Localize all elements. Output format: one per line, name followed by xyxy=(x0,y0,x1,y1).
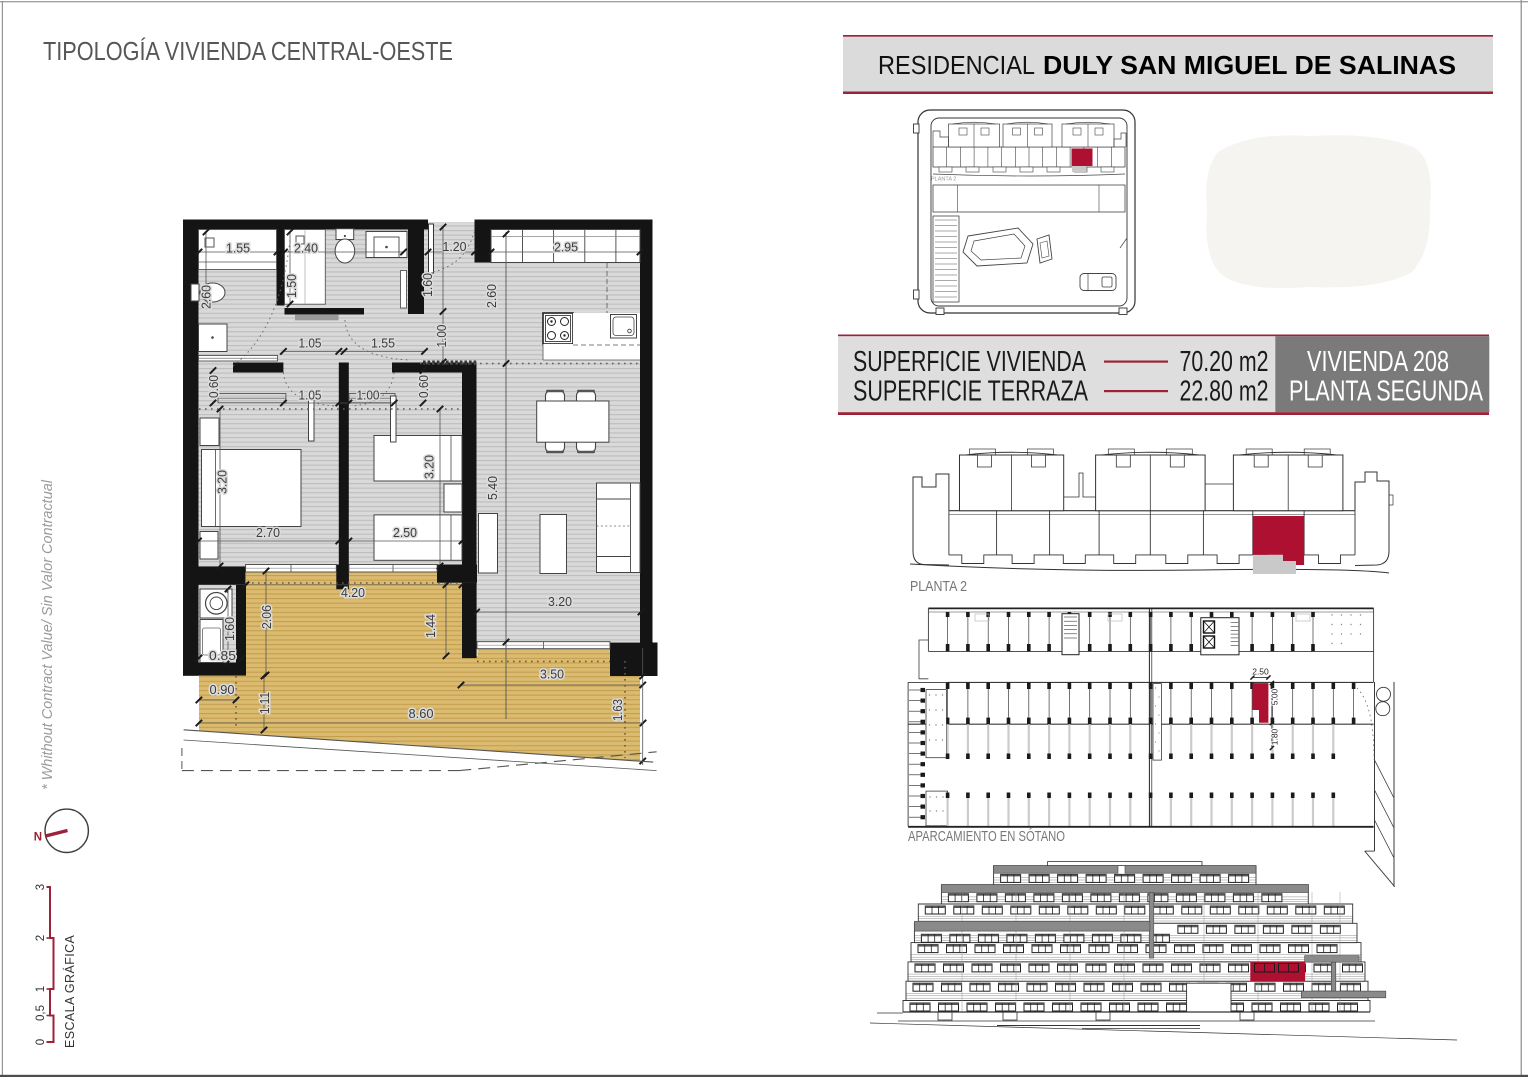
svg-text:0.90: 0.90 xyxy=(210,683,235,697)
svg-text:TIPOLOGÍA VIVIENDA CENTRAL-OES: TIPOLOGÍA VIVIENDA CENTRAL-OESTE xyxy=(43,36,453,66)
svg-text:1: 1 xyxy=(35,986,47,992)
svg-text:1.44: 1.44 xyxy=(424,614,438,638)
svg-text:0.60: 0.60 xyxy=(417,375,431,398)
svg-text:2.60: 2.60 xyxy=(200,285,214,309)
svg-text:1.11: 1.11 xyxy=(258,692,272,714)
svg-text:0,5: 0,5 xyxy=(35,1005,47,1021)
svg-text:1.63: 1.63 xyxy=(611,699,625,721)
svg-text:1.60: 1.60 xyxy=(421,273,435,297)
svg-text:1.00: 1.00 xyxy=(435,324,449,347)
svg-text:8.60: 8.60 xyxy=(409,707,434,721)
svg-text:PLANTA SEGUNDA: PLANTA SEGUNDA xyxy=(1289,376,1483,408)
svg-text:2.06: 2.06 xyxy=(260,605,274,629)
svg-text:ESCALA GRÁFICA: ESCALA GRÁFICA xyxy=(62,934,77,1048)
svg-text:0.60: 0.60 xyxy=(207,375,221,398)
svg-text:70.20 m2: 70.20 m2 xyxy=(1180,346,1269,378)
svg-text:5.00: 5.00 xyxy=(1270,688,1280,705)
svg-text:PLANTA 2: PLANTA 2 xyxy=(931,177,956,183)
svg-text:PLANTA 2: PLANTA 2 xyxy=(910,579,967,595)
svg-text:1.55: 1.55 xyxy=(226,242,250,256)
svg-text:RESIDENCIAL: RESIDENCIAL xyxy=(878,50,1035,80)
svg-text:2.40: 2.40 xyxy=(294,242,318,256)
svg-text:1.60: 1.60 xyxy=(223,617,237,641)
svg-text:2.60: 2.60 xyxy=(485,284,499,308)
svg-text:3.20: 3.20 xyxy=(548,595,572,609)
svg-text:1.55: 1.55 xyxy=(371,337,395,351)
svg-text:22.80 m2: 22.80 m2 xyxy=(1180,376,1269,408)
svg-text:3: 3 xyxy=(35,884,47,890)
svg-text:VIVIENDA 208: VIVIENDA 208 xyxy=(1307,346,1449,378)
svg-text:2: 2 xyxy=(35,935,47,941)
svg-text:1.50: 1.50 xyxy=(285,274,299,298)
svg-text:3.20: 3.20 xyxy=(216,470,230,494)
svg-text:3.50: 3.50 xyxy=(540,668,564,682)
svg-text:0.85: 0.85 xyxy=(209,649,236,663)
svg-text:2.50: 2.50 xyxy=(393,526,417,540)
svg-text:DULY SAN MIGUEL DE SALINAS: DULY SAN MIGUEL DE SALINAS xyxy=(1043,50,1456,80)
svg-text:4.20: 4.20 xyxy=(341,586,365,600)
svg-text:1.00: 1.00 xyxy=(357,389,380,403)
svg-text:1.05: 1.05 xyxy=(299,337,322,351)
svg-text:0: 0 xyxy=(35,1039,47,1045)
svg-text:1.20: 1.20 xyxy=(443,240,467,254)
svg-text:APARCAMIENTO EN SÓTANO: APARCAMIENTO EN SÓTANO xyxy=(908,828,1065,845)
svg-text:1.05: 1.05 xyxy=(299,389,322,403)
svg-text:5.40: 5.40 xyxy=(486,476,500,500)
svg-text:1.80: 1.80 xyxy=(1270,728,1280,745)
svg-text:SUPERFICIE TERRAZA: SUPERFICIE TERRAZA xyxy=(853,376,1088,408)
svg-text:N: N xyxy=(34,832,42,844)
svg-text:2.50: 2.50 xyxy=(1252,667,1269,677)
svg-text:3.20: 3.20 xyxy=(423,455,437,479)
svg-text:* Whithout Contract Value/ Sin: * Whithout Contract Value/ Sin Valor Con… xyxy=(39,479,56,790)
svg-text:SUPERFICIE VIVIENDA: SUPERFICIE VIVIENDA xyxy=(853,346,1086,378)
svg-text:2.95: 2.95 xyxy=(554,241,578,255)
svg-text:2.70: 2.70 xyxy=(256,526,280,540)
